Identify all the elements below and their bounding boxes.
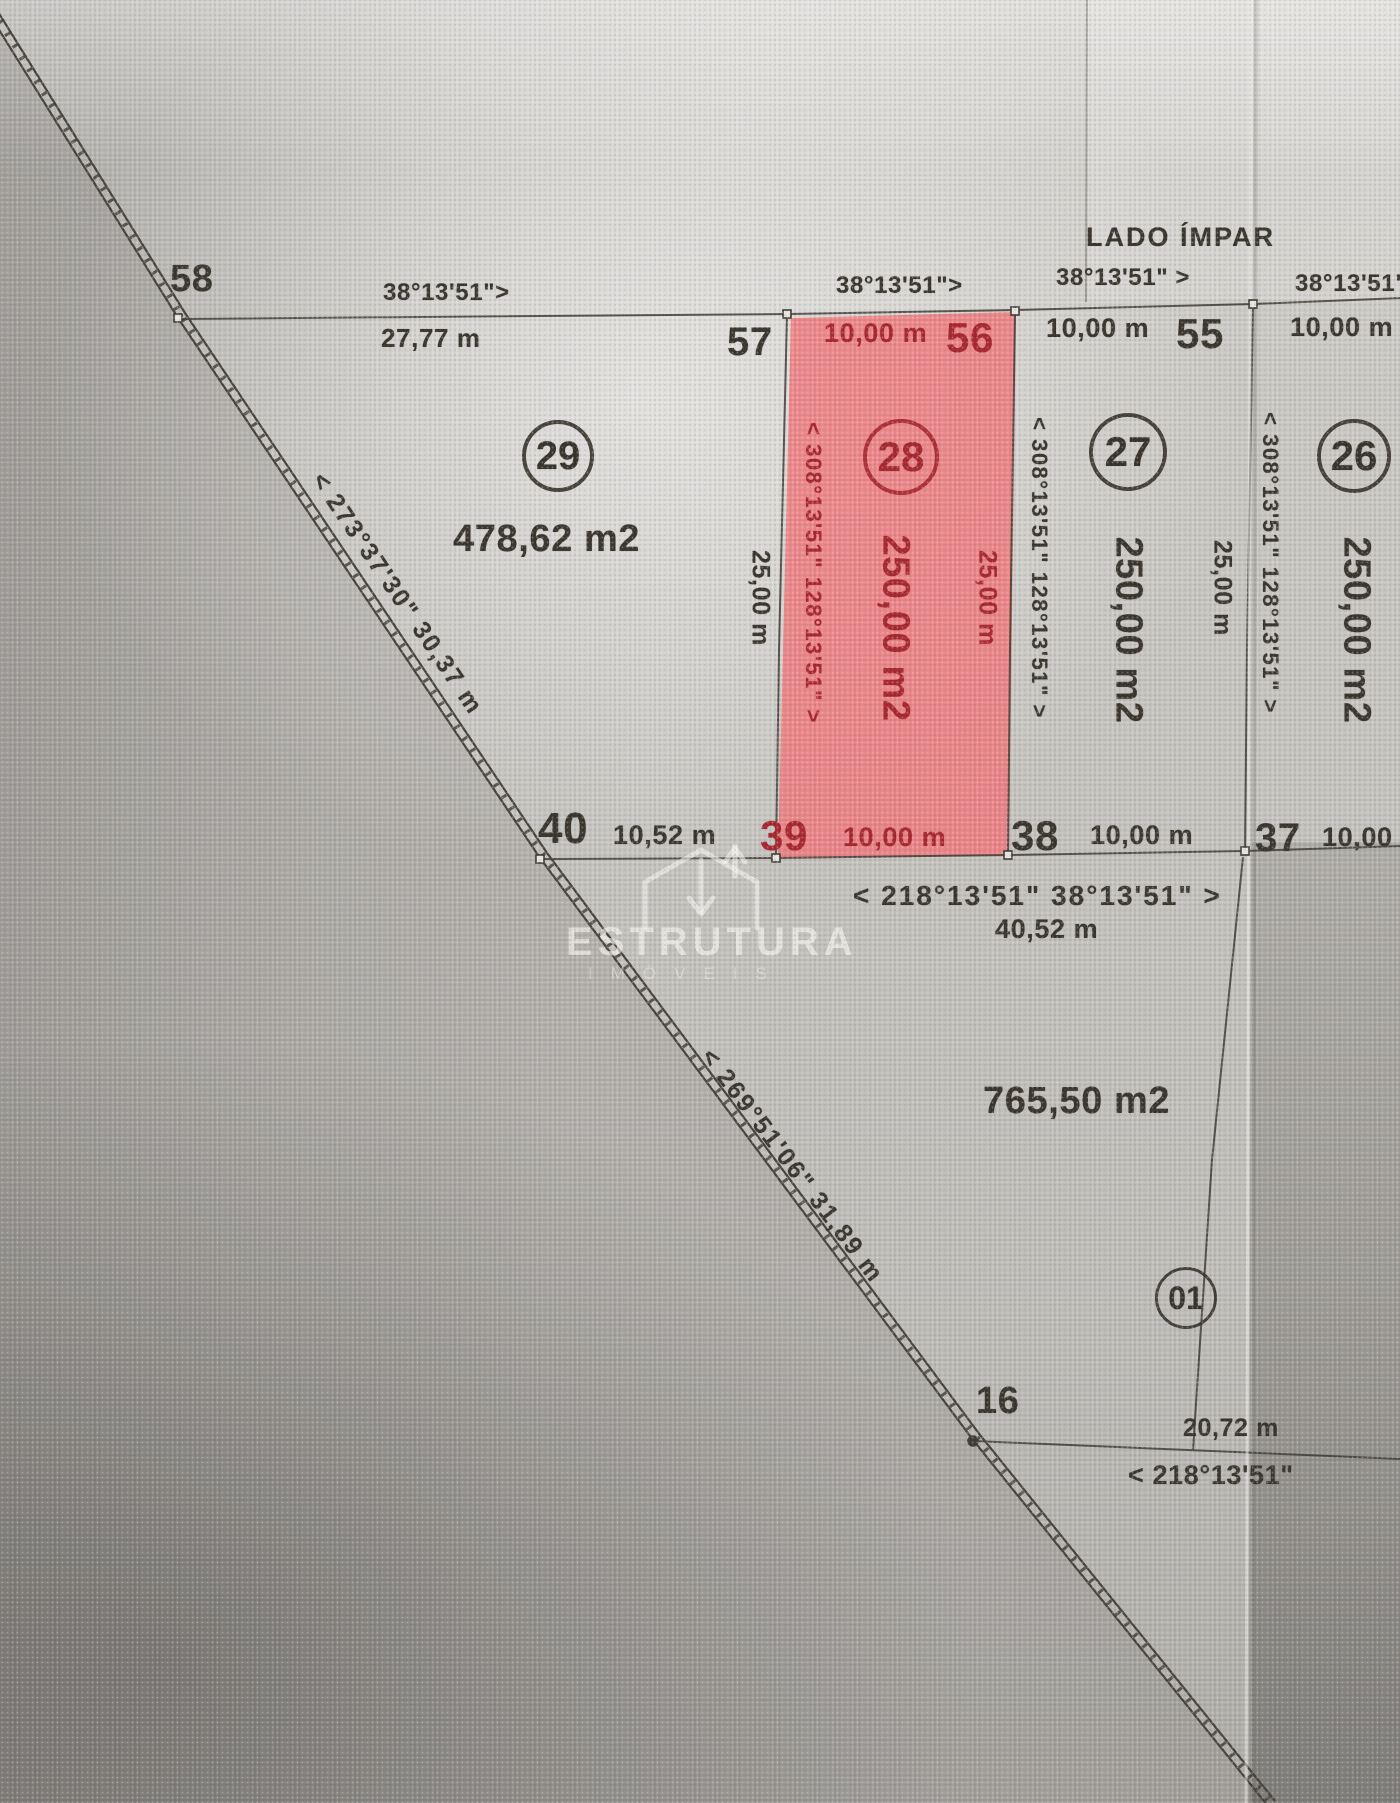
lot-27-circle: 27 bbox=[1089, 413, 1167, 491]
length-37-36: 10,00 bbox=[1322, 822, 1393, 853]
vertex-58-label: 58 bbox=[170, 258, 213, 301]
survey-map: LADO ÍMPAR 38°13'51"> 27,77 m 38°13'51">… bbox=[0, 0, 1400, 1803]
vertex-16-label: 16 bbox=[976, 1380, 1019, 1423]
remainder-south-bearing: < 218°13'51" bbox=[1128, 1460, 1294, 1491]
lot-28-circle: 28 bbox=[863, 419, 939, 495]
length-56-55: 10,00 m bbox=[1046, 313, 1149, 344]
remainder-area: 765,50 m2 bbox=[983, 1080, 1170, 1123]
lot-29-area: 478,62 m2 bbox=[453, 518, 640, 561]
vertex-38-label: 38 bbox=[1011, 812, 1059, 860]
length-40-39: 10,52 m bbox=[613, 820, 716, 851]
vertex-39-label: 39 bbox=[760, 812, 808, 860]
lot-27-number: 27 bbox=[1105, 428, 1152, 476]
lot-29-circle: 29 bbox=[522, 420, 594, 492]
side-bearing-lot27: < 308°13'51" 128°13'51" > bbox=[1026, 417, 1052, 719]
lot-29-number: 29 bbox=[536, 434, 581, 479]
vertex-57-label: 57 bbox=[727, 320, 773, 365]
length-58-57: 27,77 m bbox=[381, 323, 481, 354]
bearing-55-54: 38°13'51" bbox=[1295, 270, 1400, 298]
bearing-56-55: 38°13'51" > bbox=[1056, 264, 1190, 292]
remainder-south-length: 20,72 m bbox=[1183, 1414, 1279, 1443]
vertex-56-label: 56 bbox=[946, 314, 994, 362]
bearing-57-56: 38°13'51"> bbox=[836, 272, 963, 300]
lot-26-area: 250,00 m2 bbox=[1335, 536, 1378, 723]
side-length-57-39: 25,00 m bbox=[746, 550, 775, 646]
south-boundary-line bbox=[973, 1441, 1400, 1459]
lot-27-area: 250,00 m2 bbox=[1107, 536, 1150, 723]
bearing-58-57: 38°13'51"> bbox=[383, 279, 510, 307]
lot-01-circle: 01 bbox=[1155, 1267, 1217, 1329]
remainder-front-length: 40,52 m bbox=[995, 914, 1098, 945]
length-57-56: 10,00 m bbox=[824, 318, 927, 349]
lot-26-circle: 26 bbox=[1317, 419, 1391, 493]
lot-26-number: 26 bbox=[1331, 432, 1378, 480]
divider-below-37 bbox=[1193, 857, 1243, 1450]
side-bearing-lot26: < 308°13'51" 128°13'51" > bbox=[1257, 412, 1283, 714]
crease-top bbox=[1086, 0, 1087, 302]
side-length-56-38: 25,00 m bbox=[973, 550, 1002, 646]
length-55-54: 10,00 m bbox=[1290, 312, 1393, 343]
lot-01-number: 01 bbox=[1168, 1280, 1204, 1317]
length-38-37: 10,00 m bbox=[1090, 820, 1193, 851]
watermark-subtitle: IMÓVEIS bbox=[588, 964, 785, 984]
vertex-40-label: 40 bbox=[538, 804, 588, 854]
lot-28-number: 28 bbox=[878, 433, 925, 481]
vertex-37-label: 37 bbox=[1255, 816, 1301, 861]
side-length-55-37: 25,00 m bbox=[1208, 540, 1237, 636]
remainder-front-bearing: < 218°13'51" 38°13'51" > bbox=[853, 880, 1222, 912]
side-bearing-lot28: < 308°13'51" 128°13'51" > bbox=[800, 422, 826, 724]
street-label: LADO ÍMPAR bbox=[1086, 222, 1275, 253]
vertex-55-label: 55 bbox=[1176, 310, 1224, 358]
lot-28-area: 250,00 m2 bbox=[874, 534, 917, 721]
length-39-38: 10,00 m bbox=[843, 822, 946, 853]
watermark-title: ESTRUTURA bbox=[566, 920, 858, 965]
